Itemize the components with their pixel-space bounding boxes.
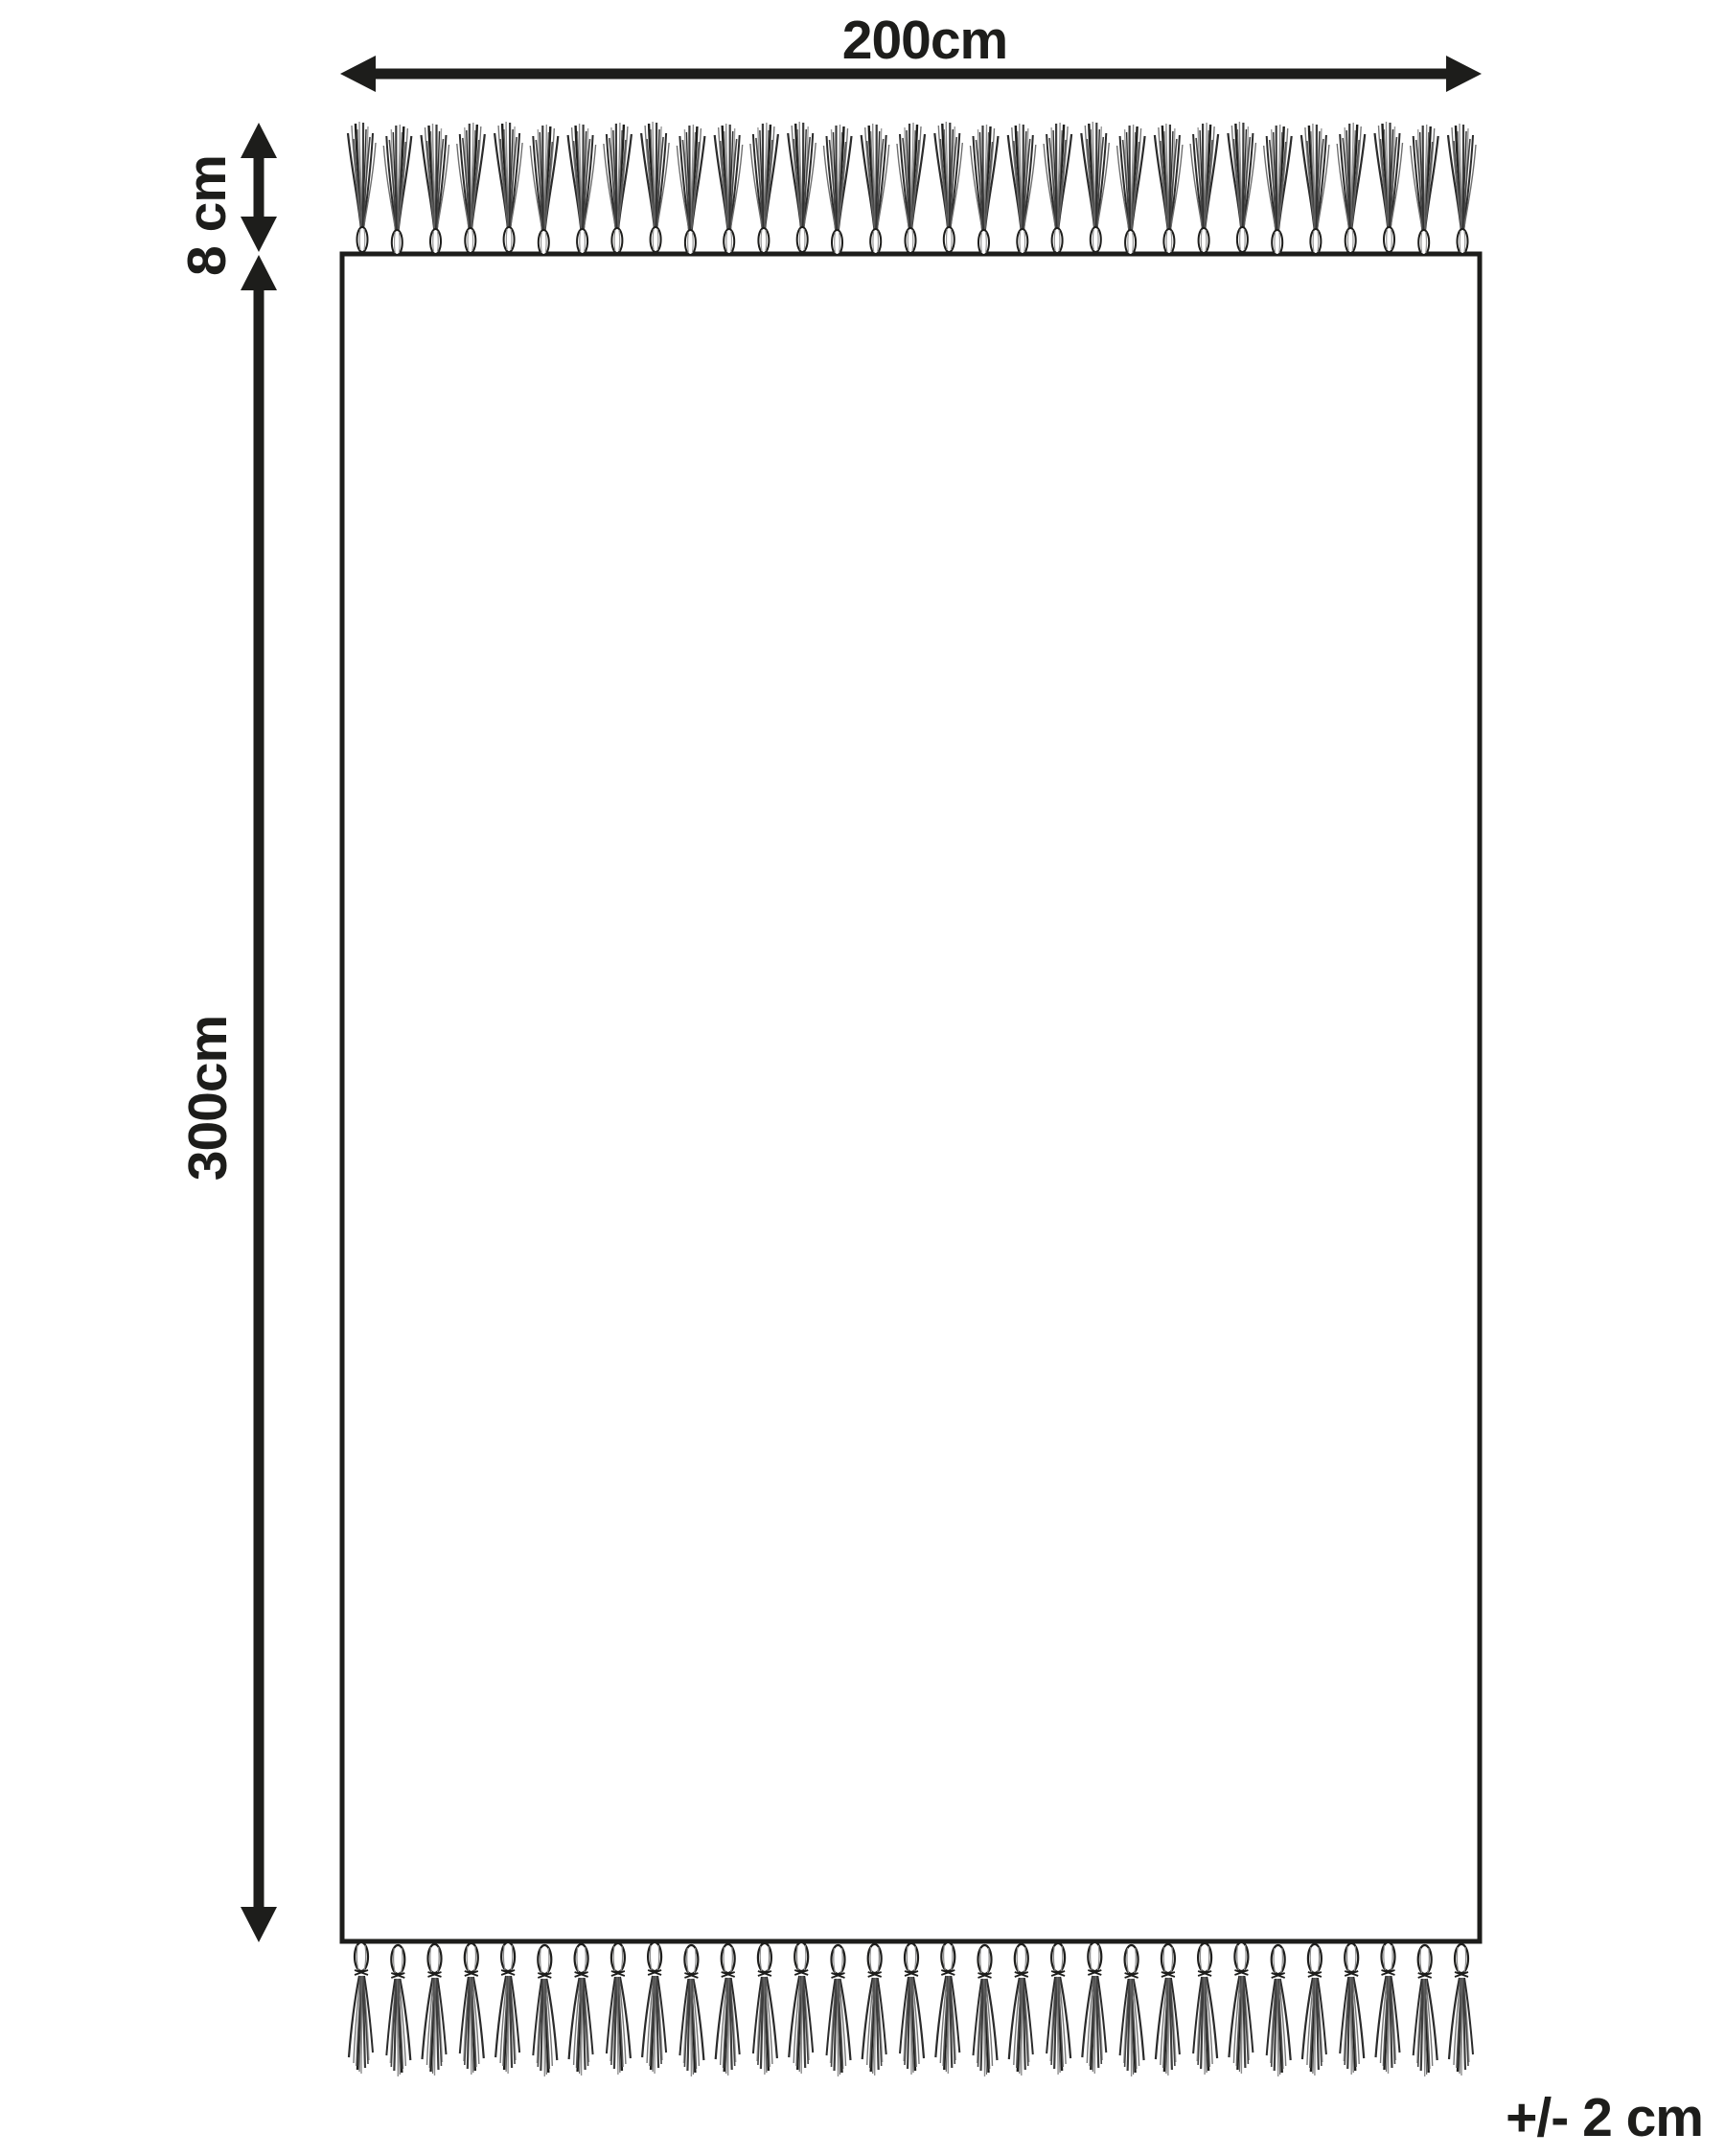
tassel-top bbox=[1155, 124, 1183, 254]
tassel-top bbox=[530, 125, 558, 255]
diagram-drawing bbox=[0, 0, 1725, 2156]
tassel-bottom bbox=[1414, 1945, 1437, 2076]
tassel-bottom bbox=[349, 1942, 373, 2074]
tassel-top bbox=[604, 123, 632, 253]
tassel-top bbox=[494, 122, 522, 252]
tassel-bottom bbox=[1156, 1944, 1180, 2076]
tassel-bottom bbox=[862, 1944, 886, 2076]
tassel-top bbox=[677, 125, 704, 255]
tassel-bottom bbox=[1267, 1945, 1291, 2076]
tassel-top bbox=[1044, 123, 1071, 253]
tassel-bottom bbox=[679, 1945, 703, 2076]
tassel-bottom bbox=[789, 1942, 813, 2074]
tassel-bottom bbox=[1009, 1944, 1033, 2076]
tassel-top bbox=[934, 122, 962, 252]
top-fringe bbox=[348, 122, 1476, 255]
tassel-top bbox=[750, 123, 778, 253]
tassel-bottom bbox=[495, 1942, 519, 2074]
tassel-bottom bbox=[1376, 1942, 1400, 2074]
tassel-bottom bbox=[1229, 1942, 1253, 2074]
tassel-top bbox=[1008, 124, 1036, 254]
tassel-top bbox=[568, 124, 596, 254]
tassel-top bbox=[971, 125, 999, 255]
tassel-bottom bbox=[1120, 1945, 1144, 2076]
tassel-top bbox=[1375, 122, 1403, 252]
tassel-bottom bbox=[1302, 1944, 1326, 2076]
width-dimension-label: 200cm bbox=[810, 13, 1040, 68]
tassel-bottom bbox=[1046, 1943, 1070, 2075]
tassel-top bbox=[1301, 124, 1329, 254]
tassel-top bbox=[824, 125, 852, 255]
tassel-top bbox=[641, 122, 669, 252]
bottom-fringe bbox=[349, 1942, 1473, 2076]
tassel-bottom bbox=[1193, 1943, 1217, 2075]
tassel-top bbox=[422, 124, 449, 254]
tassel-bottom bbox=[974, 1945, 998, 2076]
tassel-bottom bbox=[935, 1942, 959, 2074]
tassel-bottom bbox=[1340, 1943, 1364, 2075]
tassel-top bbox=[1081, 122, 1109, 252]
tassel-top bbox=[1411, 125, 1438, 255]
tassel-bottom bbox=[1449, 1944, 1473, 2076]
height-dimension-label: 300cm bbox=[174, 1002, 241, 1194]
tassel-top bbox=[383, 125, 411, 255]
tassel-bottom bbox=[716, 1944, 740, 2076]
tolerance-label: +/- 2 cm bbox=[1506, 2091, 1703, 2145]
tassel-top bbox=[788, 122, 816, 252]
tassel-bottom bbox=[533, 1945, 557, 2076]
tassel-top bbox=[1190, 123, 1218, 253]
tassel-top bbox=[1448, 124, 1476, 254]
rug-dimension-diagram: 200cm 8 cm 300cm +/- 2 cm bbox=[0, 0, 1725, 2156]
tassel-top bbox=[897, 123, 925, 253]
tassel-bottom bbox=[1082, 1942, 1106, 2074]
tassel-bottom bbox=[569, 1944, 593, 2076]
tassel-bottom bbox=[607, 1943, 631, 2075]
tassel-top bbox=[1264, 125, 1292, 255]
tassel-bottom bbox=[900, 1943, 924, 2075]
tassel-bottom bbox=[642, 1942, 666, 2074]
tassel-top bbox=[715, 124, 743, 254]
tassel-top bbox=[862, 124, 889, 254]
tassel-top bbox=[1337, 123, 1365, 253]
tassel-bottom bbox=[386, 1945, 410, 2076]
tassel-bottom bbox=[460, 1943, 484, 2075]
fringe-dimension-arrow-icon bbox=[241, 123, 277, 252]
rug-outline bbox=[342, 254, 1480, 1941]
fringe-length-label: 8 cm bbox=[173, 120, 241, 311]
tassel-bottom bbox=[753, 1943, 777, 2075]
tassel-bottom bbox=[827, 1945, 851, 2076]
tassel-top bbox=[457, 123, 485, 253]
tassel-bottom bbox=[423, 1944, 447, 2076]
height-dimension-arrow-icon bbox=[241, 255, 277, 1942]
tassel-top bbox=[1228, 122, 1255, 252]
tassel-top bbox=[348, 122, 376, 252]
tassel-top bbox=[1117, 125, 1145, 255]
